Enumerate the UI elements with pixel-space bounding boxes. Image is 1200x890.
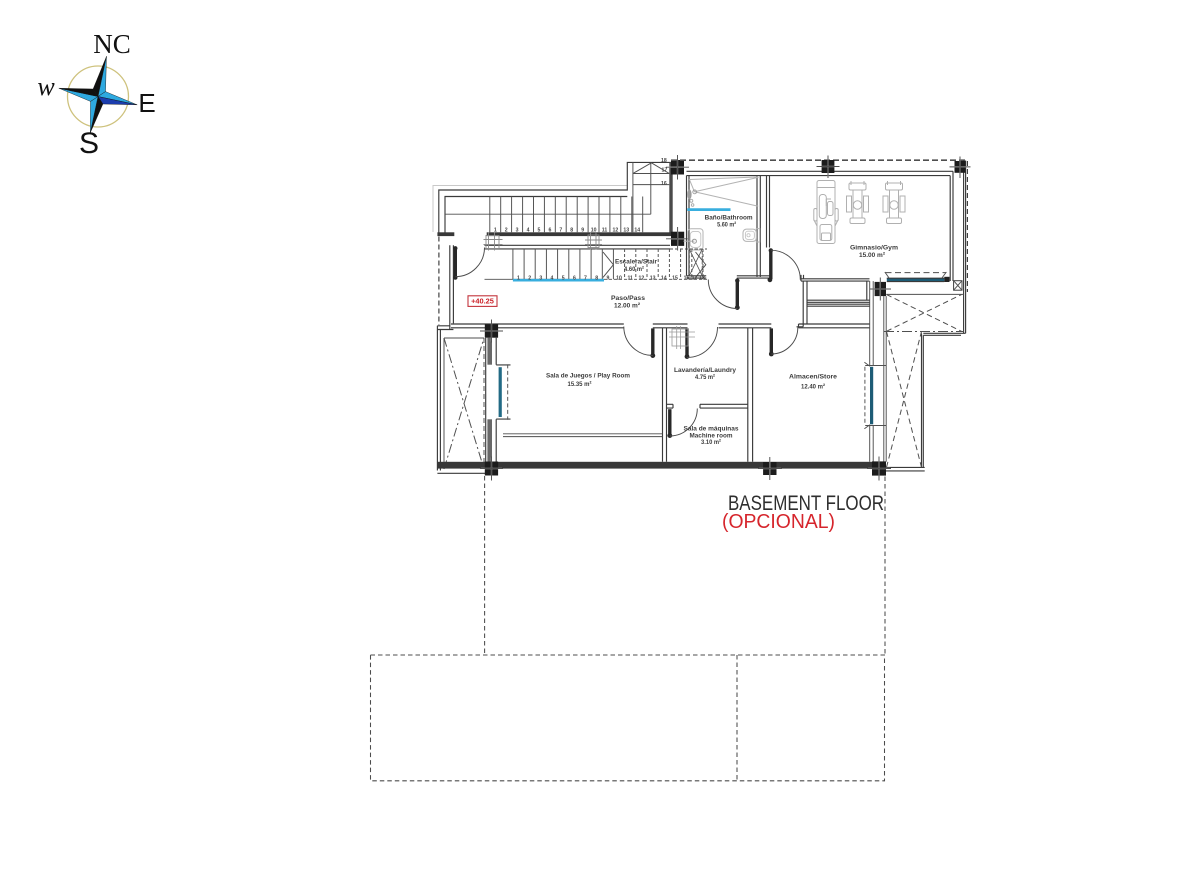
svg-text:8: 8 bbox=[570, 227, 573, 233]
svg-text:Paso/Pass: Paso/Pass bbox=[611, 295, 645, 302]
svg-text:1: 1 bbox=[517, 276, 520, 282]
svg-text:12.40 m²: 12.40 m² bbox=[801, 384, 826, 391]
svg-text:15.00 m²: 15.00 m² bbox=[859, 252, 886, 259]
svg-text:17: 17 bbox=[662, 168, 668, 174]
svg-text:NC: NC bbox=[93, 29, 131, 59]
svg-text:(OPCIONAL): (OPCIONAL) bbox=[722, 511, 835, 533]
svg-text:5: 5 bbox=[562, 276, 565, 282]
svg-text:14: 14 bbox=[661, 276, 667, 282]
svg-text:6: 6 bbox=[573, 276, 576, 282]
svg-text:11: 11 bbox=[602, 227, 608, 233]
svg-text:4.75 m²: 4.75 m² bbox=[695, 374, 716, 381]
svg-text:3: 3 bbox=[516, 227, 519, 233]
svg-text:13: 13 bbox=[650, 276, 656, 282]
svg-text:S: S bbox=[79, 127, 99, 160]
svg-text:6: 6 bbox=[548, 227, 551, 233]
svg-text:+40.25: +40.25 bbox=[471, 297, 494, 306]
svg-text:E: E bbox=[138, 88, 155, 118]
svg-text:15.35 m²: 15.35 m² bbox=[568, 381, 593, 388]
svg-text:7: 7 bbox=[559, 227, 562, 233]
svg-text:14: 14 bbox=[634, 227, 640, 233]
svg-text:13: 13 bbox=[623, 227, 629, 233]
svg-text:w: w bbox=[37, 72, 55, 101]
svg-text:2: 2 bbox=[528, 276, 531, 282]
svg-text:2: 2 bbox=[505, 227, 508, 233]
svg-text:12.00 m²: 12.00 m² bbox=[614, 303, 641, 310]
svg-text:1: 1 bbox=[494, 227, 497, 233]
svg-text:Sala de Juegos / Play Room: Sala de Juegos / Play Room bbox=[546, 373, 630, 380]
svg-text:5: 5 bbox=[538, 227, 541, 233]
svg-text:18: 18 bbox=[661, 158, 667, 164]
svg-text:10: 10 bbox=[616, 276, 622, 282]
svg-text:9: 9 bbox=[606, 276, 609, 282]
svg-text:Almacen/Store: Almacen/Store bbox=[789, 374, 837, 381]
svg-text:Gimnasio/Gym: Gimnasio/Gym bbox=[850, 244, 898, 251]
svg-text:3: 3 bbox=[539, 276, 542, 282]
svg-text:8: 8 bbox=[595, 276, 598, 282]
svg-text:9: 9 bbox=[581, 227, 584, 233]
svg-text:4: 4 bbox=[527, 227, 530, 233]
svg-text:Escalera/Stair: Escalera/Stair bbox=[615, 259, 657, 266]
svg-text:12: 12 bbox=[613, 227, 619, 233]
svg-text:7: 7 bbox=[584, 276, 587, 282]
svg-text:3.10 m²: 3.10 m² bbox=[701, 439, 722, 446]
svg-text:12: 12 bbox=[639, 276, 645, 282]
svg-text:5.60 m²: 5.60 m² bbox=[717, 221, 737, 228]
svg-text:4.60 m²: 4.60 m² bbox=[624, 266, 645, 273]
svg-text:16: 16 bbox=[661, 181, 667, 187]
svg-text:15: 15 bbox=[672, 276, 678, 282]
svg-text:11: 11 bbox=[627, 276, 633, 282]
svg-text:4: 4 bbox=[551, 276, 554, 282]
